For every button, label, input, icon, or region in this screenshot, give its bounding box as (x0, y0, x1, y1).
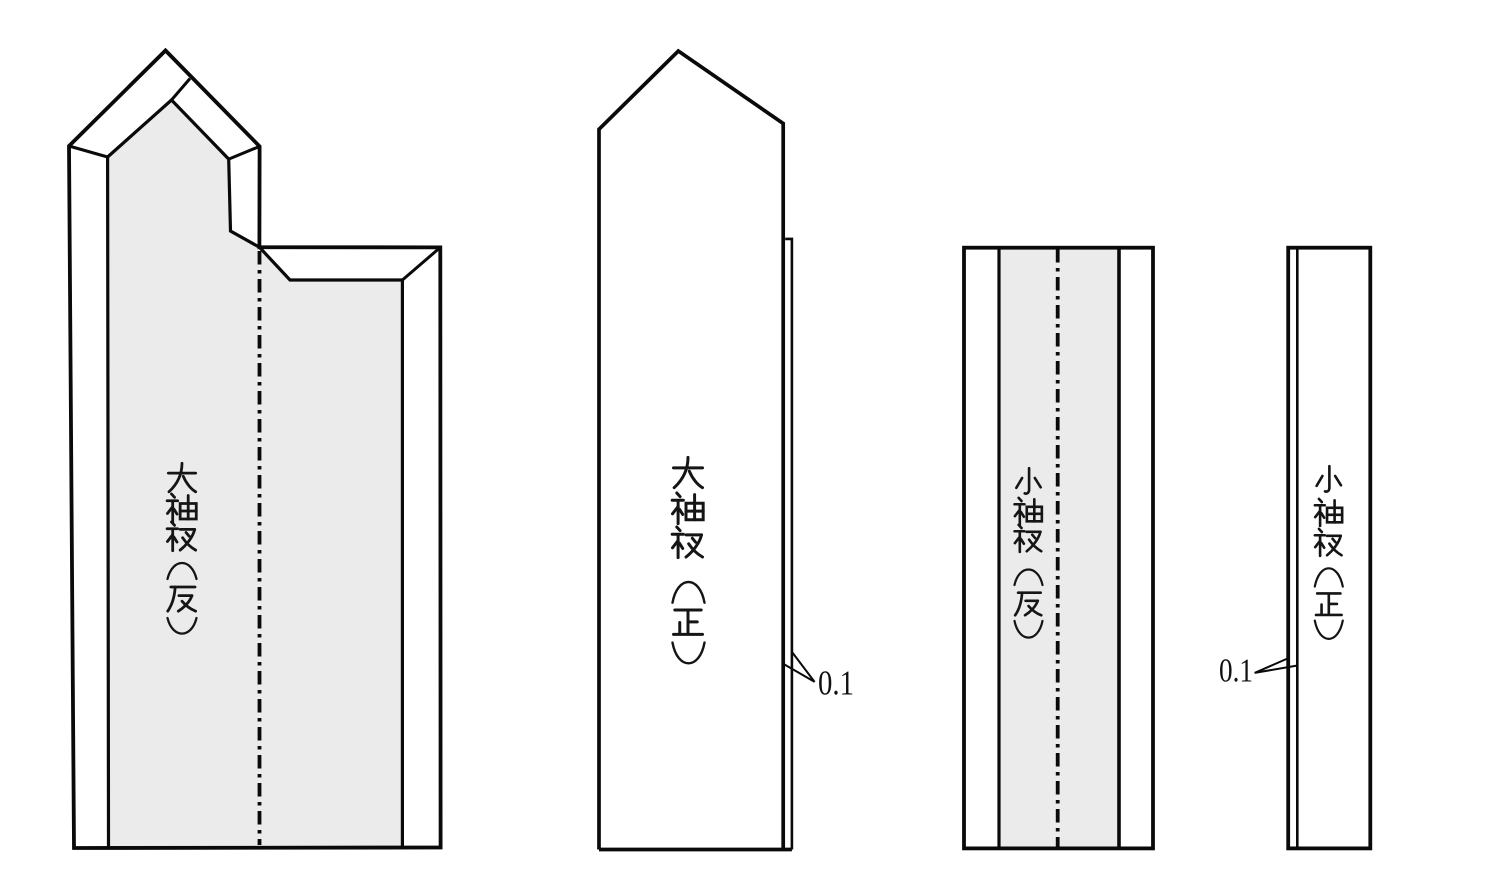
svg-text:0.1: 0.1 (1219, 653, 1253, 690)
svg-text:0.1: 0.1 (818, 665, 854, 703)
